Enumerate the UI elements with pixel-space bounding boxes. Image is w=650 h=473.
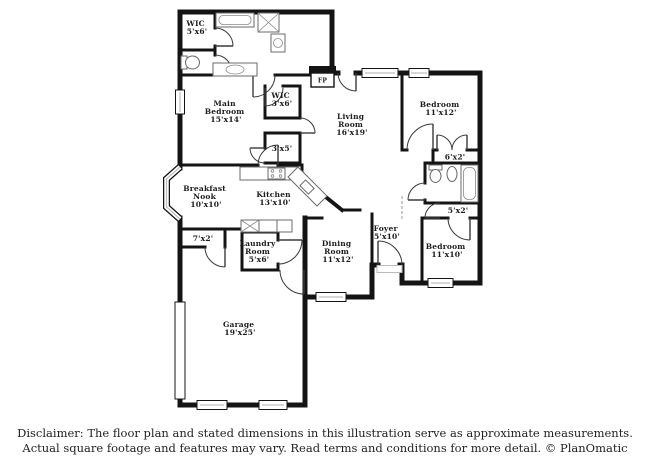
room-label-closet-7x2: 7'x2': [193, 234, 214, 243]
garage-entry-door: [280, 270, 304, 294]
disclaimer-line-2: Actual square footage and features may v…: [21, 441, 627, 455]
room-label-bedroom-bottom: Bedroom 11'x10': [426, 242, 468, 259]
living-room-door: [338, 73, 356, 91]
room-label-closet-5x2: 5'x2': [448, 206, 469, 215]
room-label-bedroom-top: Bedroom 11'x12': [420, 100, 462, 117]
floor-plan: WIC 5'x6' WIC 3'x6' Main Bedroom 15'x14'…: [0, 0, 650, 473]
room-label-wic-main: WIC 5'x6': [185, 19, 207, 36]
closet-6x2-double-doors: [437, 135, 467, 150]
front-door: [378, 241, 402, 265]
room-label-laundry: Laundry Room 5'x6': [240, 239, 279, 264]
shower-icon: [258, 13, 279, 32]
fireplace-label: FP: [318, 78, 327, 85]
room-label-dining: Dining Room 11'x12': [322, 239, 354, 264]
room-label-garage: Garage 19'x25': [223, 320, 257, 337]
water-closet-icon: [271, 34, 285, 52]
closet-3x5-door: [250, 148, 265, 163]
window-main-bedroom: [176, 90, 185, 114]
room-label-living-room: Living Room 16'x19': [336, 112, 367, 137]
window-living-room: [362, 69, 398, 78]
window-bedroom-bottom: [428, 279, 453, 288]
window-bedroom-top: [409, 69, 429, 78]
bathtub2-icon: [461, 165, 478, 202]
floor-plan-page: WIC 5'x6' WIC 3'x6' Main Bedroom 15'x14'…: [0, 0, 650, 473]
bath2-door: [408, 183, 425, 200]
laundry-door: [278, 240, 302, 264]
garage-door: [175, 302, 185, 399]
window-garage-1: [197, 401, 227, 410]
room-label-wic-2: WIC 3'x6': [270, 91, 292, 108]
main-bedroom-entry-door: [300, 118, 315, 133]
sink2-icon: [447, 167, 457, 182]
room-label-foyer: Foyer 5'x10': [374, 224, 401, 241]
stove-icon: [268, 168, 285, 179]
window-dining: [316, 293, 346, 302]
room-label-breakfast-nook: Breakfast Nook 10'x10': [183, 184, 229, 209]
bedroom-top-door: [407, 124, 433, 150]
disclaimer: Disclaimer: The floor plan and stated di…: [17, 426, 633, 455]
room-label-closet-6x2: 6'x2': [445, 153, 466, 162]
room-label-main-bedroom: Main Bedroom 15'x14': [205, 99, 247, 124]
bay-window: [167, 167, 181, 219]
bedroom-bottom-door: [448, 218, 470, 240]
toilet-icon: [181, 56, 200, 69]
closet-5x2-door: [425, 203, 440, 218]
window-garage-2: [259, 401, 287, 410]
room-label-kitchen: Kitchen 13'x10': [256, 190, 293, 207]
closet-7x2-door: [205, 247, 225, 267]
bathtub-icon: [216, 13, 254, 27]
disclaimer-line-1: Disclaimer: The floor plan and stated di…: [17, 426, 633, 440]
front-stoop: [377, 266, 402, 273]
toilet2-icon: [429, 165, 442, 183]
washer-dryer-icon: [241, 220, 292, 232]
room-label-closet-3x5: 3'x5': [272, 144, 293, 153]
vanity-sink-icon: [213, 63, 257, 76]
wic-5x6-door: [215, 28, 233, 46]
